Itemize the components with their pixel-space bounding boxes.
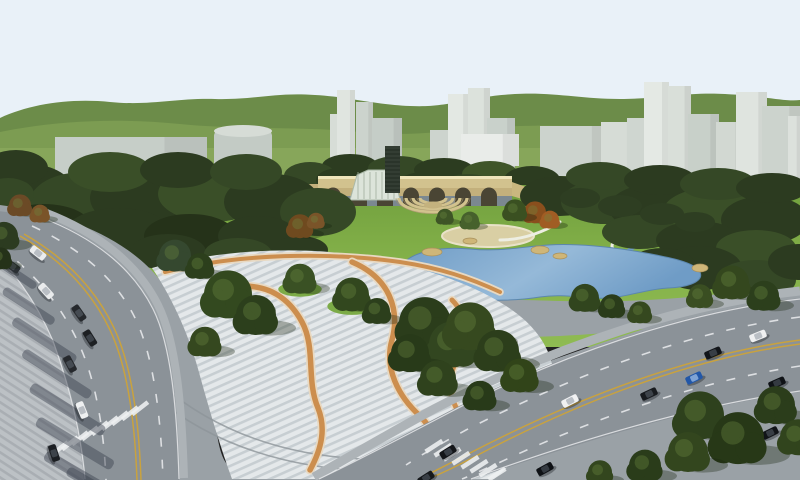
bridge-arch: [481, 188, 497, 206]
amphitheater-stage: [424, 202, 442, 209]
rock: [553, 253, 567, 259]
canopy-blob: [598, 195, 642, 217]
canopy-blob: [675, 212, 715, 232]
canopy-blob: [68, 152, 152, 192]
canopy-blob: [566, 162, 634, 190]
bridge-deck: [318, 179, 512, 188]
rock: [422, 248, 442, 256]
canopy-blob: [560, 188, 600, 208]
building: [644, 82, 669, 174]
rock: [463, 238, 477, 244]
park-aerial-rendering: [0, 0, 800, 480]
bridge-railing: [318, 176, 512, 179]
canopy-blob: [140, 152, 216, 188]
canopy-blob: [210, 154, 282, 190]
rock: [692, 264, 708, 272]
beige-plaza: [442, 225, 534, 247]
building: [788, 116, 800, 182]
building: [668, 86, 691, 174]
rock: [531, 246, 549, 254]
rendered-scene: [0, 0, 800, 480]
